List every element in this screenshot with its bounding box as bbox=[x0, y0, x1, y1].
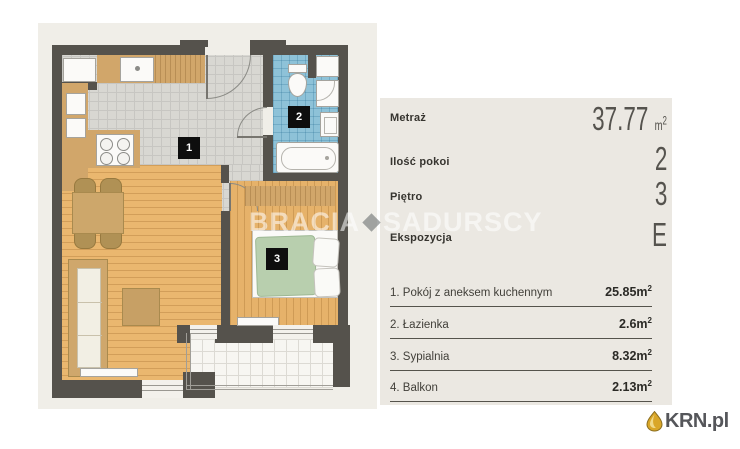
krn-logo-icon bbox=[646, 411, 663, 432]
wall-balcony-pier bbox=[177, 325, 190, 343]
shower-curve bbox=[317, 81, 335, 101]
bedroom-door-leaf bbox=[229, 183, 231, 211]
washbasin bbox=[320, 112, 339, 137]
wall-divider-stub bbox=[221, 165, 229, 183]
bed-pillow bbox=[313, 267, 340, 297]
room-row-1: 1. Pokój z aneksem kuchennym 25.85m2 bbox=[390, 284, 652, 307]
spec-value-ekspozycja: E bbox=[652, 218, 667, 251]
wall-bottom-left bbox=[52, 380, 142, 398]
bathtub-drain bbox=[325, 156, 329, 160]
wall-left bbox=[52, 45, 62, 398]
room-area: 2.6m2 bbox=[619, 316, 652, 331]
spec-value-pokoje: 2 bbox=[655, 142, 667, 175]
balcony-railing-left bbox=[190, 333, 191, 390]
coffee-table bbox=[122, 288, 160, 326]
window-line bbox=[273, 329, 313, 330]
window-balcony-left bbox=[190, 325, 217, 339]
faucet-dot bbox=[135, 66, 140, 71]
bed-pillow bbox=[312, 237, 340, 268]
wall-bathroom-upper bbox=[263, 45, 273, 107]
room-area-sup: 2 bbox=[648, 316, 652, 325]
spec-label-pietro: Piętro bbox=[390, 191, 422, 203]
details-panel: Metraż 37.77 m2 Ilość pokoi 2 Piętro 3 E… bbox=[380, 98, 672, 405]
watermark: BRACIA SADURSCY bbox=[249, 207, 543, 238]
balcony-door bbox=[273, 325, 313, 339]
room-label-2: 2 bbox=[288, 106, 310, 128]
room-area-base: 8.32m bbox=[612, 349, 647, 363]
room-name: 2. Łazienka bbox=[390, 319, 449, 331]
wall-bedroom-bottom-right bbox=[313, 325, 338, 343]
window-line bbox=[273, 333, 313, 334]
window-line bbox=[142, 390, 183, 391]
listing-image: 1 2 3 Metraż 37.77 m2 Ilość pokoi 2 Pięt… bbox=[0, 0, 740, 449]
shower bbox=[316, 80, 339, 107]
room-label-1-text: 1 bbox=[186, 142, 192, 154]
sofa-cushions bbox=[77, 268, 101, 368]
spec-label-pokoje: Ilość pokoi bbox=[390, 156, 450, 168]
room-area-base: 2.6m bbox=[619, 317, 648, 331]
balcony-railing bbox=[186, 385, 333, 386]
room-name: 4. Balkon bbox=[390, 382, 438, 394]
wall-divider bbox=[221, 211, 230, 325]
radiator-living bbox=[80, 368, 138, 377]
dining-table bbox=[72, 192, 124, 234]
room-name: 3. Sypialnia bbox=[390, 351, 449, 363]
room-label-2-text: 2 bbox=[296, 111, 302, 123]
watermark-right: SADURSCY bbox=[383, 207, 543, 238]
window-line bbox=[190, 333, 217, 334]
metraz-unit-sup: 2 bbox=[663, 114, 667, 127]
window-alcove bbox=[63, 58, 96, 82]
window-living-bottom bbox=[142, 380, 183, 398]
window-line bbox=[190, 329, 217, 330]
wall-bedroom-bottom-left bbox=[215, 325, 273, 343]
entry-door-leaf bbox=[206, 55, 208, 99]
wall-bathroom-bottom bbox=[263, 173, 348, 181]
cushion-seam bbox=[78, 302, 102, 303]
room-row-2: 2. Łazienka 2.6m2 bbox=[390, 316, 652, 339]
bathroom-shaft bbox=[316, 56, 339, 77]
room-label-3: 3 bbox=[266, 248, 288, 270]
room-label-3-text: 3 bbox=[274, 253, 280, 265]
washbasin-bowl bbox=[324, 117, 337, 134]
diamond-icon bbox=[362, 213, 380, 231]
room-area-sup: 2 bbox=[648, 348, 652, 357]
room-area-sup: 2 bbox=[648, 284, 652, 293]
metraz-number: 37.77 bbox=[592, 100, 648, 137]
room-area-base: 25.85m bbox=[605, 285, 647, 299]
room-name: 1. Pokój z aneksem kuchennym bbox=[390, 287, 552, 299]
wall-top-stub-left bbox=[180, 40, 208, 47]
room-label-1: 1 bbox=[178, 137, 200, 159]
wardrobe bbox=[245, 186, 335, 206]
balcony-railing-left bbox=[186, 333, 187, 390]
spec-value-metraz: 37.77 m2 bbox=[592, 102, 667, 135]
toilet-tank bbox=[288, 64, 307, 73]
metraz-unit: m2 bbox=[655, 117, 667, 133]
burner bbox=[100, 138, 113, 151]
window-line bbox=[142, 385, 183, 386]
sofa bbox=[68, 259, 108, 377]
stove bbox=[96, 134, 134, 166]
room-area: 2.13m2 bbox=[612, 379, 652, 394]
kitchen-appliance bbox=[66, 118, 86, 138]
burner bbox=[117, 138, 130, 151]
room-area: 8.32m2 bbox=[612, 348, 652, 363]
burner bbox=[100, 152, 113, 165]
dining-chair bbox=[74, 232, 96, 249]
wall-bathroom-stub bbox=[308, 52, 316, 78]
room-area-base: 2.13m bbox=[612, 380, 647, 394]
room-area-sup: 2 bbox=[648, 379, 652, 388]
dining-chair bbox=[100, 232, 122, 249]
balcony-railing bbox=[186, 389, 333, 390]
cushion-seam bbox=[78, 335, 102, 336]
kitchen-cabinet bbox=[155, 55, 204, 83]
room-row-4: 4. Balkon 2.13m2 bbox=[390, 379, 652, 402]
bathroom-door-leaf bbox=[237, 136, 267, 138]
burner bbox=[117, 152, 130, 165]
room-row-3: 3. Sypialnia 8.32m2 bbox=[390, 348, 652, 371]
spec-label-metraz: Metraż bbox=[390, 112, 426, 124]
spec-value-pietro: 3 bbox=[655, 177, 667, 210]
bathtub bbox=[276, 142, 339, 173]
watermark-left: BRACIA bbox=[249, 207, 360, 238]
kitchen-sink-2 bbox=[66, 93, 86, 115]
krn-logo-text: KRN.pl bbox=[665, 410, 729, 433]
krn-logo: KRN.pl bbox=[646, 410, 729, 433]
room-area: 25.85m2 bbox=[605, 284, 652, 299]
